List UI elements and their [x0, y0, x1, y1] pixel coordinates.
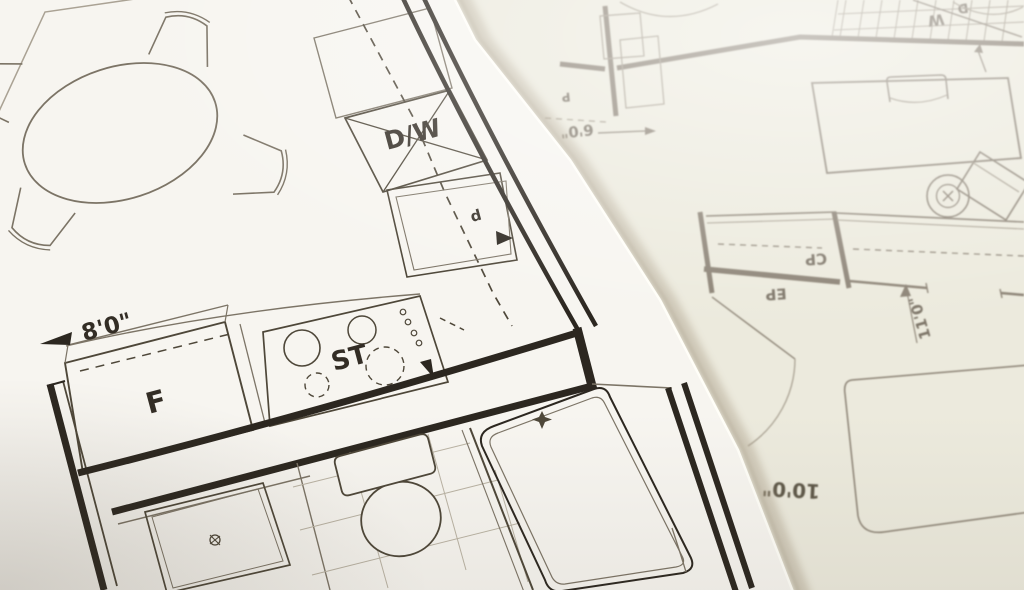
closet-cp-label: CP [804, 249, 827, 268]
floorplan-scene: W D P 6'0" [0, 0, 1024, 590]
blueprint-photo: W D P 6'0" [0, 0, 1024, 590]
washer-label: W [926, 10, 945, 30]
closet-ep-label: EP [765, 284, 787, 303]
pantry-letter: P [561, 90, 571, 105]
